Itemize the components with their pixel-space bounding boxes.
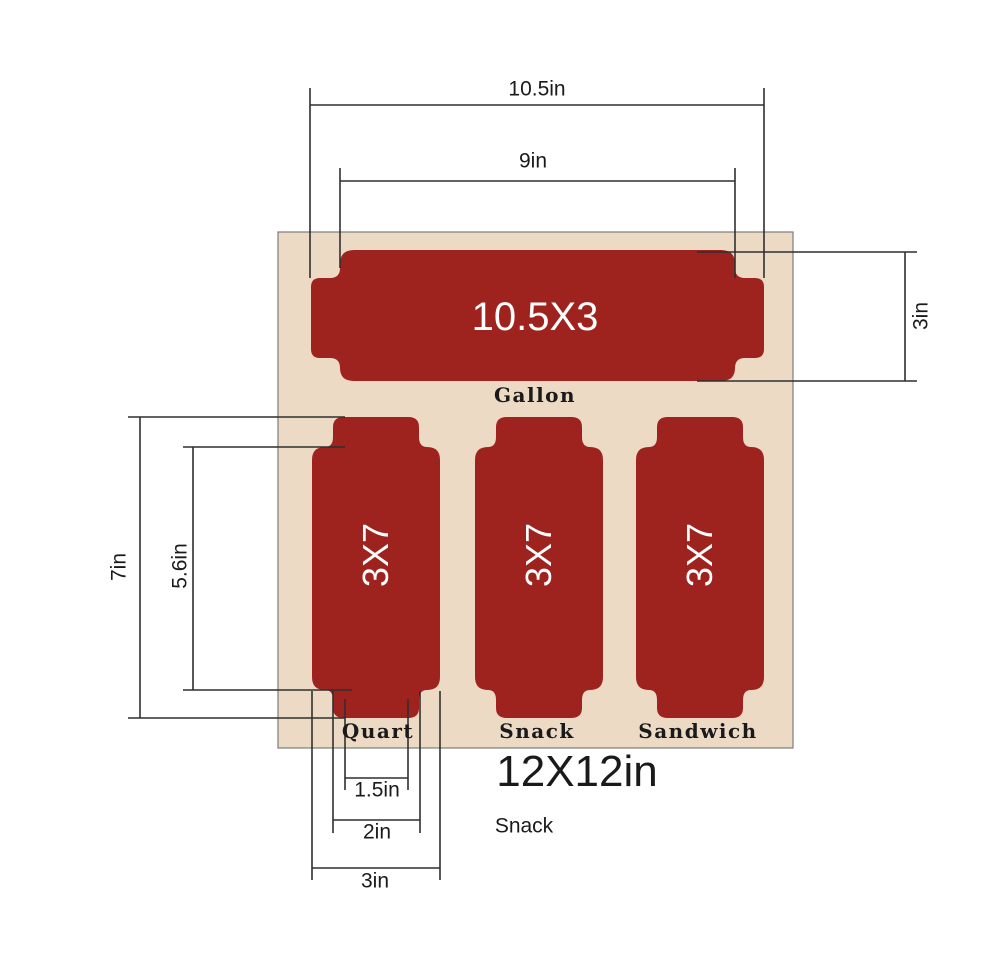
pocket-quart-name-label: Quart (342, 721, 414, 741)
dim-label-tab-tip-width: 1.5in (354, 780, 400, 801)
pocket-gallon-name-label: Gallon (494, 385, 576, 405)
dim-label-pocket-width: 3in (361, 871, 389, 892)
pocket-sandwich-name-label: Sandwich (638, 721, 757, 741)
board-size-label: 12X12in (496, 750, 657, 794)
dim-label-tab-width: 2in (363, 822, 391, 843)
dim-label-inner-width: 9in (519, 151, 547, 172)
dim-label-pocket-total-height: 7in (109, 553, 130, 581)
dimension-diagram: 10.5in 9in 3in 7in 5.6in 1.5in 2in 3in 1… (0, 0, 1002, 955)
pocket-gallon-size-label: 10.5X3 (472, 297, 599, 337)
pocket-snack-size-label: 3X7 (521, 523, 557, 587)
dim-label-overall-width: 10.5in (508, 79, 565, 100)
pocket-snack-name-label: Snack (499, 721, 574, 741)
dim-label-gallon-height: 3in (911, 302, 932, 330)
pocket-quart-size-label: 3X7 (358, 523, 394, 587)
dim-label-pocket-body-height: 5.6in (170, 543, 191, 589)
board-caption-label: Snack (495, 816, 553, 837)
pocket-sandwich-size-label: 3X7 (682, 523, 718, 587)
diagram-canvas (0, 0, 1002, 955)
